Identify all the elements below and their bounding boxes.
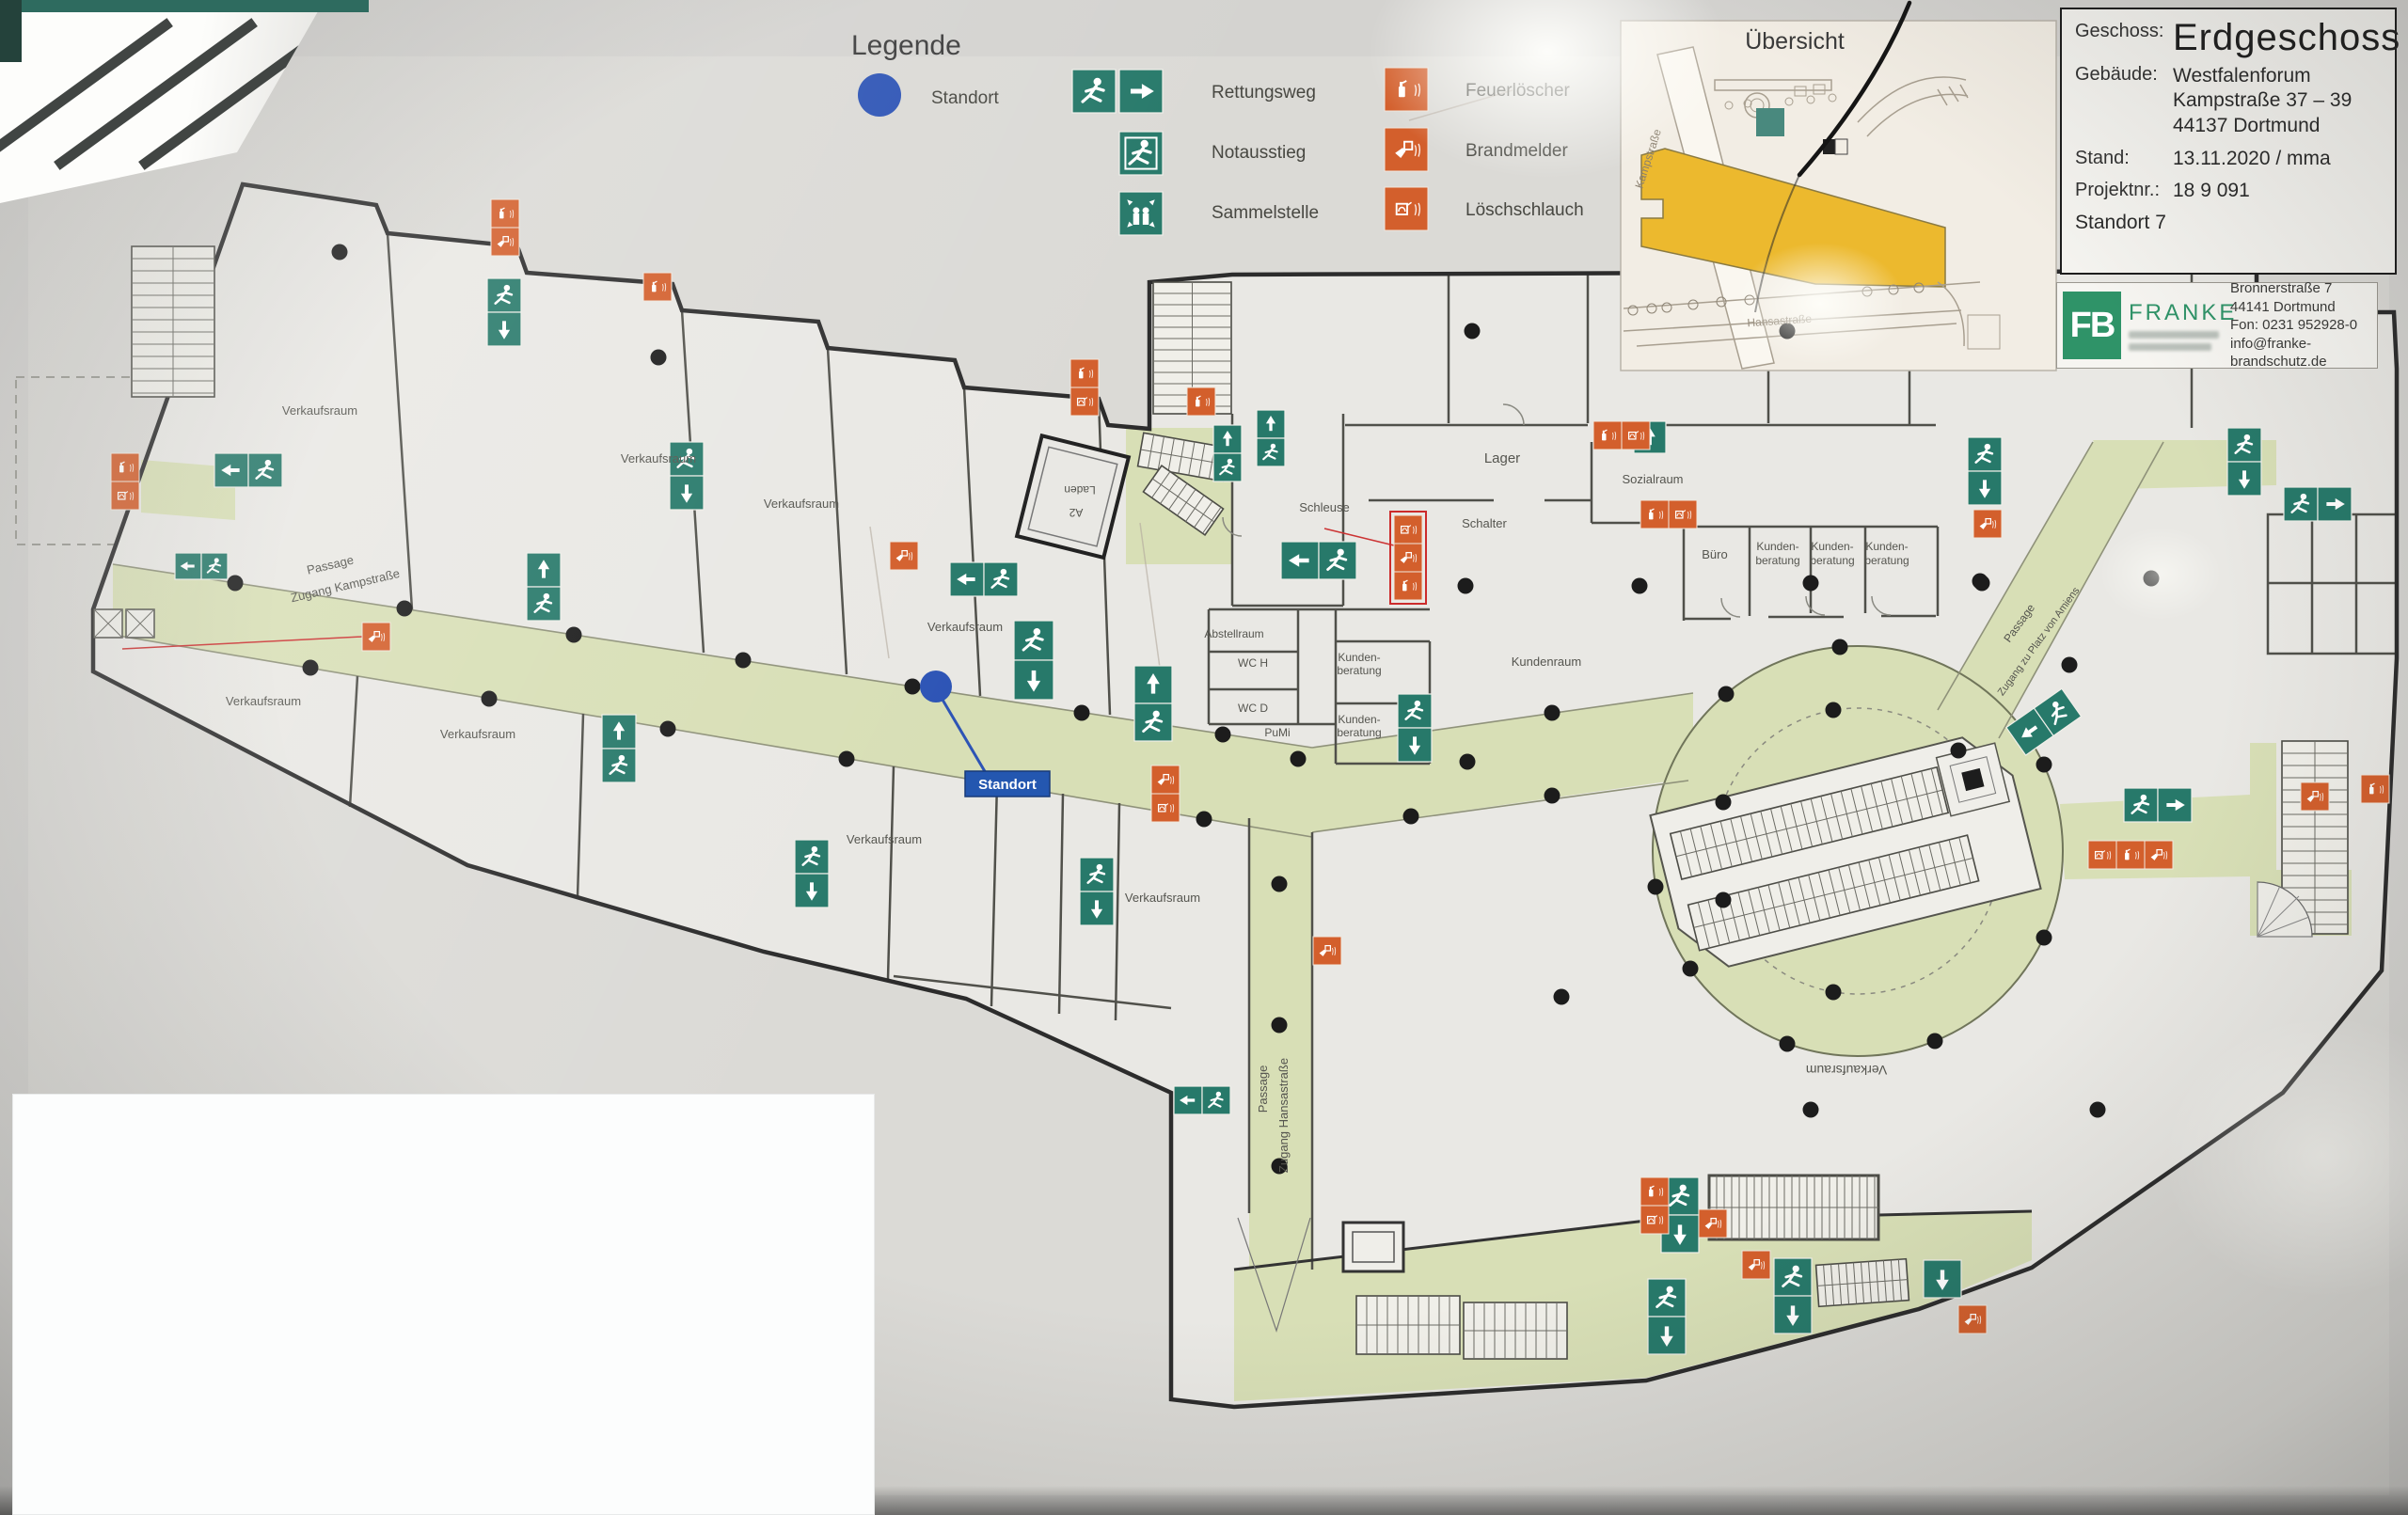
room-label: beratung: [1337, 664, 1381, 677]
assembly-point-icon: [1119, 192, 1163, 235]
column-dot: [1403, 809, 1419, 825]
fire-sign-icon: [1390, 512, 1426, 604]
fire-sign-icon: [2301, 782, 2329, 811]
exit-sign-icon: [1134, 666, 1172, 741]
extinguisher-icon: [1196, 397, 1198, 400]
staircase: [1356, 1296, 1460, 1354]
room-label: beratung: [1864, 554, 1909, 567]
column-dot: [1291, 751, 1307, 767]
room-label: Sozialraum: [1622, 472, 1683, 486]
column-dot: [1545, 705, 1560, 721]
legend-item-label: Sammelstelle: [1212, 203, 1319, 223]
geschoss-label: Geschoss:: [2075, 21, 2173, 55]
franke-company-box: FB FRANKE Bronnerstraße 7 44141 Dortmund…: [2056, 282, 2378, 369]
room-label: Verkaufsraum: [282, 403, 357, 418]
fire-sign-icon: [1699, 1209, 1727, 1238]
franke-city: 44141 Dortmund: [2230, 298, 2371, 317]
exit-sign-icon: [214, 453, 282, 487]
floor-title: Erdgeschoss: [2173, 21, 2400, 55]
column-dot: [1554, 989, 1570, 1005]
column-dot: [1832, 639, 1848, 655]
extinguisher-icon: [500, 209, 502, 212]
extinguisher-icon: [2126, 850, 2128, 853]
extinguisher-icon: [1079, 371, 1083, 378]
franke-email: info@franke-brandschutz.de: [2230, 335, 2371, 371]
franke-logo: FB: [2063, 292, 2121, 359]
column-dot: [1074, 705, 1090, 721]
photographed-escape-plan: VerkaufsraumVerkaufsraumVerkaufsraumVerk…: [0, 0, 2408, 1515]
fire-sign-cell: [1187, 387, 1215, 416]
legend-item-label: Brandmelder: [1465, 141, 1568, 161]
fire-sign-cell: [1394, 572, 1422, 600]
column-dot: [660, 721, 676, 737]
column-dot: [1780, 1036, 1796, 1052]
staircase: [132, 246, 214, 397]
building-city: 44137 Dortmund: [2173, 114, 2352, 138]
room-label: beratung: [1755, 554, 1799, 567]
info-panel: Geschoss: Erdgeschoss Gebäude: Westfalen…: [2060, 8, 2397, 275]
exit-sign-icon: [1774, 1258, 1812, 1334]
room-label: Kunden-: [1338, 651, 1380, 664]
column-dot: [736, 653, 752, 669]
person-icon: [1143, 213, 1149, 225]
column-dot: [1545, 788, 1560, 804]
column-dot: [2144, 571, 2160, 587]
extinguisher-icon: [1649, 513, 1653, 519]
fire-sign-cell: [2116, 841, 2145, 869]
fire-sign-cell: [2361, 775, 2389, 803]
franke-street: Bronnerstraße 7: [2230, 279, 2371, 298]
exit-sign-icon: [2284, 487, 2352, 521]
room-label: Kundenraum: [1512, 655, 1581, 669]
staircase: [1816, 1259, 1909, 1307]
room-label: WC D: [1238, 702, 1268, 715]
fire-sign-cell: [1385, 68, 1428, 111]
room-label: Passage: [1256, 1065, 1270, 1113]
standort-number: Standort 7: [2075, 212, 2166, 234]
room-label: PuMi: [1264, 726, 1290, 739]
standort-dot: [920, 671, 952, 702]
legend-item-label: Löschschlauch: [1465, 200, 1584, 220]
column-dot: [1716, 795, 1732, 811]
franke-subtitle-blur: [2129, 343, 2211, 351]
franke-name: FRANKE: [2129, 300, 2230, 326]
column-dot: [2036, 930, 2052, 946]
legend-title: Legende: [851, 30, 961, 61]
extinguisher-icon: [1196, 400, 1199, 406]
person-icon: [1143, 207, 1149, 213]
redacted-area: [12, 1094, 875, 1515]
column-dot: [1951, 743, 1967, 759]
exit-sign-icon: [1398, 694, 1432, 762]
legend-item-label: Feuerlöscher: [1465, 81, 1571, 101]
extinguisher-icon: [1080, 369, 1082, 371]
extinguisher-icon: [2125, 853, 2129, 860]
column-dot: [1826, 702, 1842, 718]
column-dot: [651, 350, 667, 366]
exit-sign-icon: [2227, 428, 2261, 496]
person-icon: [1133, 207, 1139, 213]
fire-sign-icon: [111, 453, 139, 510]
column-dot: [1719, 686, 1735, 702]
fire-sign-cell: [1070, 359, 1099, 387]
fire-sign-icon: [890, 542, 918, 570]
exit-sign-icon: [527, 553, 561, 621]
room-label: Verkaufsraum: [847, 832, 922, 846]
extinguisher-icon: [653, 282, 655, 285]
fire-sign-icon: [1640, 1177, 1669, 1234]
room-label: Verkaufsraum: [226, 694, 301, 708]
fire-sign-icon: [2361, 775, 2389, 803]
fire-sign-cell: [1640, 500, 1669, 529]
overview-map: [1621, 21, 2056, 371]
fire-sign-cell: [491, 199, 519, 228]
fire-sign-icon: [1313, 937, 1341, 965]
extinguisher-icon: [1649, 1190, 1653, 1196]
fire-sign-cell: [1385, 187, 1428, 230]
extinguisher-icon: [1399, 87, 1405, 97]
room-label: Schleuse: [1299, 500, 1349, 514]
exit-sign-icon: [1213, 425, 1242, 481]
room-label: Verkaufsraum: [927, 620, 1003, 634]
column-dot: [1716, 892, 1732, 908]
fire-sign-cell: [1640, 1177, 1669, 1206]
fire-sign-icon: [1640, 500, 1697, 529]
column-dot: [1460, 754, 1476, 770]
extinguisher-icon: [1400, 82, 1402, 87]
projekt-value: 18 9 091: [2173, 180, 2250, 202]
column-dot: [1927, 1034, 1943, 1049]
exit-sign-icon: [1080, 858, 1114, 925]
exit-sign-icon: [1257, 410, 1285, 466]
exit-sign-icon: [175, 553, 228, 579]
fire-sign-icon: [362, 623, 390, 651]
projekt-label: Projektnr.:: [2075, 180, 2173, 202]
exit-sign-icon: [1014, 621, 1053, 700]
person-icon: [1133, 213, 1139, 225]
extinguisher-icon: [1602, 434, 1606, 440]
stand-label: Stand:: [2075, 148, 2173, 170]
column-dot: [1803, 1102, 1819, 1118]
room-label: Kunden-: [1811, 540, 1853, 553]
extinguisher-icon: [2369, 787, 2373, 794]
exit-sign-icon: [2124, 788, 2192, 822]
room-label: WC H: [1238, 656, 1268, 670]
fire-sign-icon: [1973, 510, 2002, 538]
room-label: beratung: [1810, 554, 1854, 567]
exit-sign-icon: [1924, 1260, 1961, 1298]
room-label: Kunden-: [1865, 540, 1908, 553]
room-label: Lager: [1484, 450, 1520, 466]
room-label: Verkaufsraum: [764, 497, 839, 511]
column-dot: [1648, 879, 1664, 895]
extinguisher-icon: [120, 463, 122, 466]
room-label: Verkaufsraum: [621, 451, 696, 466]
fire-sign-cell: [111, 453, 139, 481]
staircase: [1709, 1176, 1878, 1239]
column-dot: [905, 679, 921, 695]
room-label: Verkaufsraum: [1806, 1063, 1887, 1078]
fire-sign-icon: [2088, 841, 2173, 869]
fire-sign-icon: [1187, 387, 1215, 416]
column-dot: [1272, 1018, 1288, 1034]
room-label: Kunden-: [1338, 713, 1380, 726]
staircase: [1464, 1302, 1567, 1359]
franke-subtitle-blur: [2129, 331, 2219, 339]
franke-phone: Fon: 0231 952928-0: [2230, 316, 2371, 335]
room-label: A2: [1069, 506, 1083, 519]
standort-label-text: Standort: [978, 777, 1037, 793]
room-label: Büro: [1702, 547, 1727, 561]
column-dot: [482, 691, 498, 707]
exit-sign-icon: [1281, 542, 1356, 579]
fire-sign-icon: [1742, 1251, 1770, 1279]
room-label: Abstellraum: [1204, 627, 1263, 640]
fire-sign-cell: [1593, 421, 1622, 450]
extinguisher-icon: [1650, 1187, 1652, 1190]
column-dot: [1465, 324, 1481, 339]
room-label: Zugang Hansastraße: [1276, 1058, 1291, 1173]
extinguisher-icon: [1650, 510, 1652, 513]
column-dot: [1826, 985, 1842, 1001]
gebaeude-label: Gebäude:: [2075, 64, 2173, 138]
room-label: Kunden-: [1756, 540, 1798, 553]
extinguisher-icon: [652, 285, 656, 292]
column-dot: [332, 245, 348, 260]
fire-sign-icon: [491, 199, 519, 256]
legend-item-label: Standort: [931, 88, 1000, 108]
extinguisher-icon: [1603, 431, 1605, 434]
column-dot: [1974, 576, 1990, 592]
stand-value: 13.11.2020 / mma: [2173, 148, 2331, 170]
exit-sign-icon: [1648, 1279, 1686, 1354]
extinguisher-icon: [1403, 581, 1405, 584]
column-dot: [566, 627, 582, 643]
legend-item-label: Notausstieg: [1212, 143, 1306, 163]
fire-sign-icon: [1151, 765, 1180, 822]
column-dot: [1458, 578, 1474, 594]
room-label: beratung: [1337, 726, 1381, 739]
legend-item-label: Rettungsweg: [1212, 83, 1316, 103]
building-name: Westfalenforum: [2173, 64, 2352, 88]
extinguisher-icon: [1402, 584, 1406, 591]
extinguisher-icon: [119, 466, 123, 472]
extinguisher-icon: [2370, 784, 2372, 787]
room-label: Verkaufsraum: [440, 727, 515, 741]
room-label: Schalter: [1462, 516, 1507, 530]
fire-sign-cell: [643, 273, 672, 301]
column-dot: [1683, 961, 1699, 977]
fire-sign-icon: [643, 273, 672, 301]
column-dot: [397, 601, 413, 617]
exit-sign-icon: [1968, 437, 2002, 505]
fire-sign-icon: [1070, 359, 1099, 416]
fire-sign-icon: [1593, 421, 1650, 450]
exit-sign-icon: [795, 840, 829, 907]
column-dot: [2062, 657, 2078, 673]
column-dot: [1272, 876, 1288, 892]
column-dot: [839, 751, 855, 767]
column-dot: [2036, 757, 2052, 773]
column-dot: [1632, 578, 1648, 594]
column-dot: [2090, 1102, 2106, 1118]
room-label: Verkaufsraum: [1125, 891, 1200, 905]
exit-sign-icon: [950, 562, 1018, 596]
exit-sign-icon: [487, 278, 521, 346]
exit-sign-icon: [1174, 1086, 1230, 1114]
column-dot: [303, 660, 319, 676]
room-label: Laden: [1064, 483, 1095, 497]
standort-dot-icon: [858, 73, 901, 117]
extinguisher-icon: [499, 212, 503, 218]
column-dot: [228, 576, 244, 592]
column-dot: [1803, 576, 1819, 592]
building-street: Kampstraße 37 – 39: [2173, 88, 2352, 113]
column-dot: [1215, 727, 1231, 743]
fire-sign-icon: [1958, 1305, 1987, 1334]
exit-sign-icon: [602, 715, 636, 782]
overview-title: Übersicht: [1745, 28, 1845, 55]
column-dot: [1196, 812, 1212, 828]
